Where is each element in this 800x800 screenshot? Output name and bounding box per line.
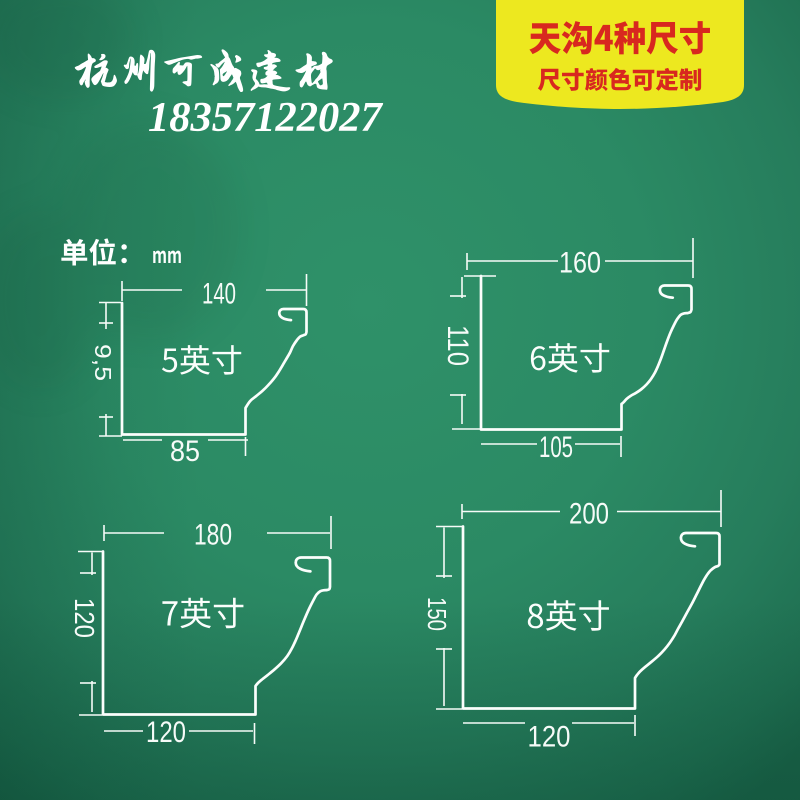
svg-text:85: 85 bbox=[170, 435, 200, 468]
svg-text:200: 200 bbox=[569, 498, 609, 531]
svg-text:9,5: 9,5 bbox=[90, 344, 116, 381]
svg-text:120: 120 bbox=[146, 716, 186, 749]
svg-text:120: 120 bbox=[528, 721, 571, 754]
svg-text:140: 140 bbox=[202, 278, 236, 311]
svg-text:120: 120 bbox=[69, 598, 100, 638]
svg-text:160: 160 bbox=[559, 247, 601, 280]
svg-text:18357122027: 18357122027 bbox=[148, 94, 384, 141]
svg-text:150: 150 bbox=[422, 597, 452, 631]
svg-text:110: 110 bbox=[441, 325, 474, 366]
svg-text:180: 180 bbox=[194, 519, 232, 552]
svg-text:105: 105 bbox=[539, 431, 573, 464]
